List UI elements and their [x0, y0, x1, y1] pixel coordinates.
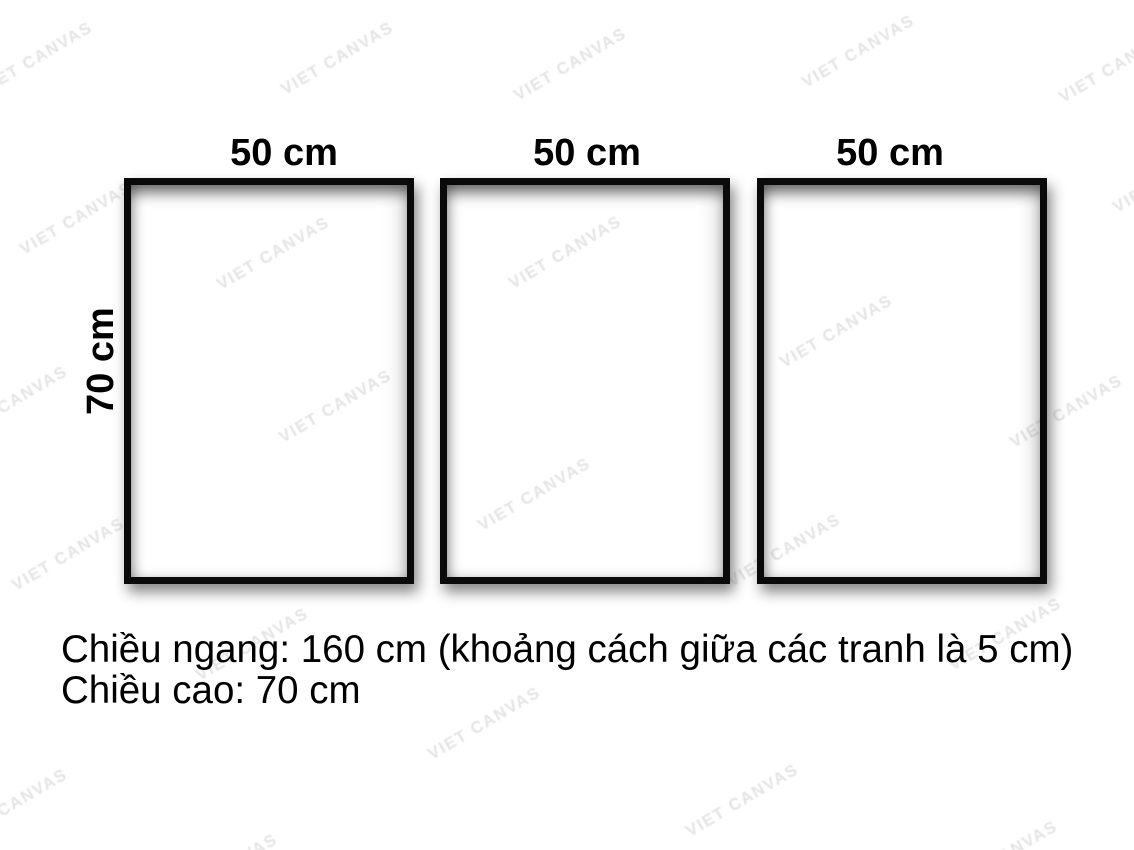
svg-text:Chiều ngang: 160 cm (khoảng cá: Chiều ngang: 160 cm (khoảng cách giữa cá… — [61, 628, 1073, 671]
svg-text:50 cm: 50 cm — [230, 132, 338, 174]
svg-text:50 cm: 50 cm — [836, 132, 944, 174]
svg-text:70 cm: 70 cm — [80, 307, 122, 415]
svg-text:50 cm: 50 cm — [533, 132, 641, 174]
svg-text:Chiều cao: 70 cm: Chiều cao: 70 cm — [61, 669, 361, 712]
